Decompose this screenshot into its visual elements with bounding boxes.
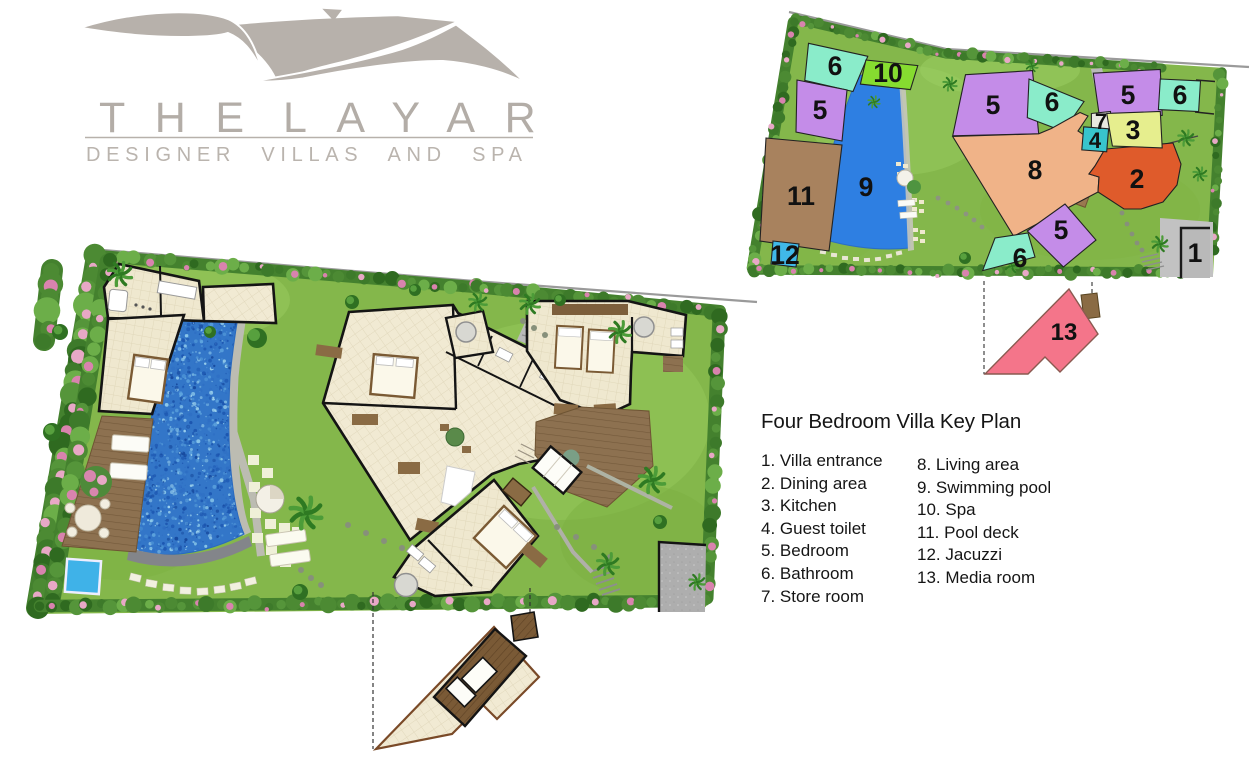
svg-text:5: 5 [1054, 215, 1069, 245]
svg-text:3: 3 [1126, 115, 1141, 145]
svg-text:13: 13 [1051, 319, 1078, 346]
svg-text:8: 8 [1028, 155, 1043, 185]
svg-text:2: 2 [1130, 164, 1145, 194]
svg-text:5: 5 [813, 95, 828, 125]
svg-text:6: 6 [1173, 80, 1188, 110]
svg-text:4: 4 [1089, 128, 1102, 153]
svg-text:5: 5 [986, 90, 1001, 120]
svg-text:12: 12 [770, 240, 799, 270]
svg-text:10: 10 [873, 58, 902, 88]
svg-text:1: 1 [1188, 238, 1203, 268]
svg-text:5: 5 [1121, 80, 1136, 110]
svg-text:6: 6 [1013, 243, 1028, 273]
svg-text:11: 11 [787, 181, 815, 211]
svg-text:9: 9 [859, 172, 874, 202]
svg-text:6: 6 [828, 51, 843, 81]
svg-text:6: 6 [1045, 87, 1060, 117]
